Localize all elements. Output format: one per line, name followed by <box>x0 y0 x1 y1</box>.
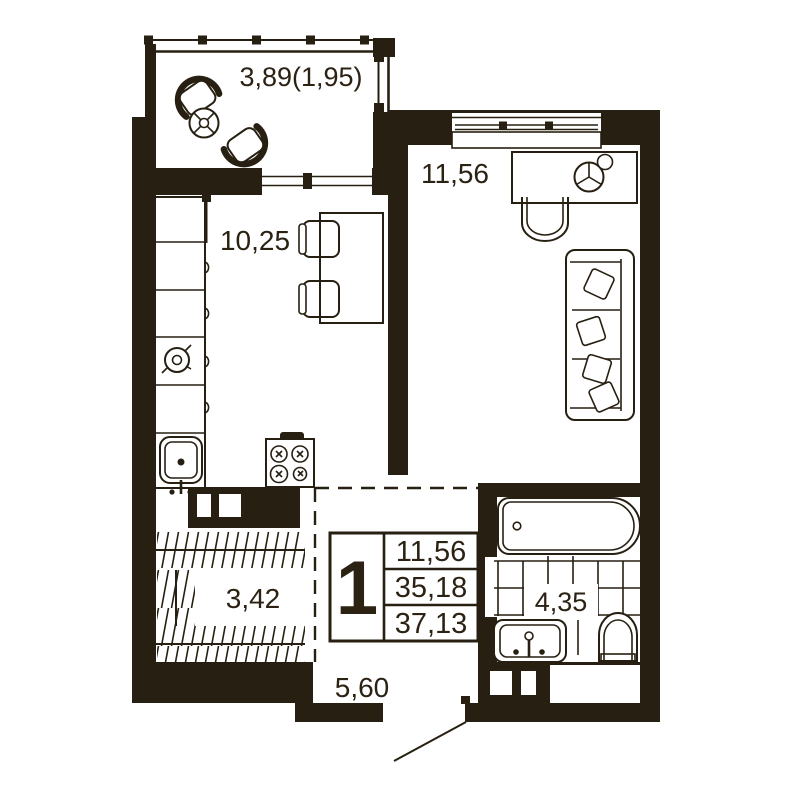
wall-segment <box>388 145 408 475</box>
floor-plan-page: 1 11,56 35,18 37,13 3,89(1,95) 11,56 10,… <box>0 0 800 800</box>
floor-plan-drawing: 1 11,56 35,18 37,13 3,89(1,95) 11,56 10,… <box>0 0 800 800</box>
window-sill <box>452 132 601 148</box>
wall-segment <box>132 168 262 195</box>
glazing-mullion <box>144 36 153 45</box>
living-room-window <box>452 113 601 148</box>
glazing-mullion <box>374 53 384 62</box>
bath-vent-opening <box>521 671 536 695</box>
window-mullion <box>545 122 553 130</box>
hall-area-label: 3,42 <box>226 583 281 614</box>
entry-door-jamb <box>461 696 470 704</box>
toilet-icon <box>599 613 637 661</box>
entry-area-label: 5,60 <box>335 672 390 703</box>
stamp-living-area: 11,56 <box>396 536 466 568</box>
wall-segment <box>295 703 383 722</box>
bath-vent-opening <box>490 671 512 695</box>
sofa-icon <box>566 250 634 420</box>
wall-segment <box>145 44 156 118</box>
glazing-mullion <box>198 36 207 45</box>
round-table-icon <box>190 109 219 138</box>
kitchen-vent-opening <box>197 494 211 517</box>
wall-segment <box>465 703 478 722</box>
window-opening <box>262 170 372 193</box>
stamp-total-area: 37,13 <box>395 608 468 640</box>
glazing-mullion <box>306 36 315 45</box>
stamp-rooms-count: 1 <box>336 546 378 631</box>
glazing-mullion <box>252 36 261 45</box>
wall-segment <box>132 662 313 703</box>
wall-segment <box>478 483 660 497</box>
wall-segment <box>485 497 497 557</box>
wall-niche <box>550 665 640 703</box>
stamp-apartment-area: 35,18 <box>395 572 468 604</box>
wall-segment <box>132 117 156 703</box>
bath-area-label: 4,35 <box>535 587 588 617</box>
window-mullion <box>303 173 312 189</box>
balcony-area-label: 3,89(1,95) <box>239 62 362 92</box>
stove-icon <box>266 432 314 487</box>
bathtub-icon <box>498 498 640 554</box>
kitchen-vent-opening <box>219 494 241 517</box>
info-stamp: 1 11,56 35,18 37,13 <box>330 533 478 641</box>
kitchen-area-label: 10,25 <box>220 225 290 256</box>
wall-segment <box>640 145 660 722</box>
living-area-label: 11,56 <box>421 158 489 189</box>
glazing-mullion <box>360 36 369 45</box>
wash-basin-icon <box>494 620 566 662</box>
window-mullion <box>499 122 507 130</box>
glazing-mullion <box>374 103 384 112</box>
